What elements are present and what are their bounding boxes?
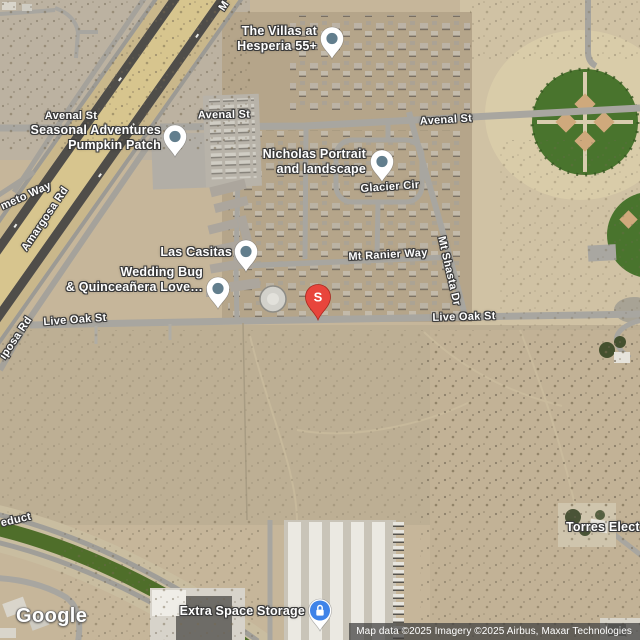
- place-dot-icon: [326, 33, 337, 44]
- place-dot-icon: [240, 246, 251, 257]
- poi-pin-pumpkin-patch[interactable]: [162, 124, 188, 158]
- place-label-wedding-bug[interactable]: Wedding Bug & Quinceañera Love…: [66, 265, 203, 295]
- place-label-torres-electric[interactable]: Torres Elect: [566, 520, 640, 535]
- map-canvas[interactable]: Avenal St Avenal St Avenal St Glacier Ci…: [0, 0, 640, 640]
- marker-letter: S: [314, 290, 323, 305]
- map-attribution: Map data ©2025 Imagery ©2025 Airbus, Max…: [349, 623, 640, 640]
- place-label-las-casitas[interactable]: Las Casitas: [160, 245, 232, 260]
- place-label-nicholas-portrait[interactable]: Nicholas Portrait and landscape: [263, 147, 366, 177]
- google-logo[interactable]: Google: [16, 605, 87, 628]
- place-label-pumpkin-patch[interactable]: Seasonal Adventures Pumpkin Patch: [31, 123, 161, 153]
- poi-pin-wedding-bug[interactable]: [205, 276, 231, 310]
- poi-pin-nicholas[interactable]: [369, 149, 395, 183]
- street-label-avenal-st-center: Avenal St: [198, 109, 251, 122]
- place-label-the-villas[interactable]: The Villas at Hesperia 55+: [237, 24, 317, 54]
- search-result-marker-s[interactable]: S: [304, 283, 332, 321]
- place-label-extra-space-storage[interactable]: Extra Space Storage: [180, 604, 305, 619]
- storage-pin-extra-space[interactable]: [307, 598, 333, 632]
- poi-pin-villas[interactable]: [319, 26, 345, 60]
- street-label-live-oak-st-east: Live Oak St: [432, 310, 496, 324]
- street-label-avenal-st-west: Avenal St: [45, 110, 97, 122]
- place-dot-icon: [169, 131, 180, 142]
- place-dot-icon: [376, 156, 387, 167]
- poi-pin-las-casitas[interactable]: [233, 239, 259, 273]
- place-dot-icon: [212, 283, 223, 294]
